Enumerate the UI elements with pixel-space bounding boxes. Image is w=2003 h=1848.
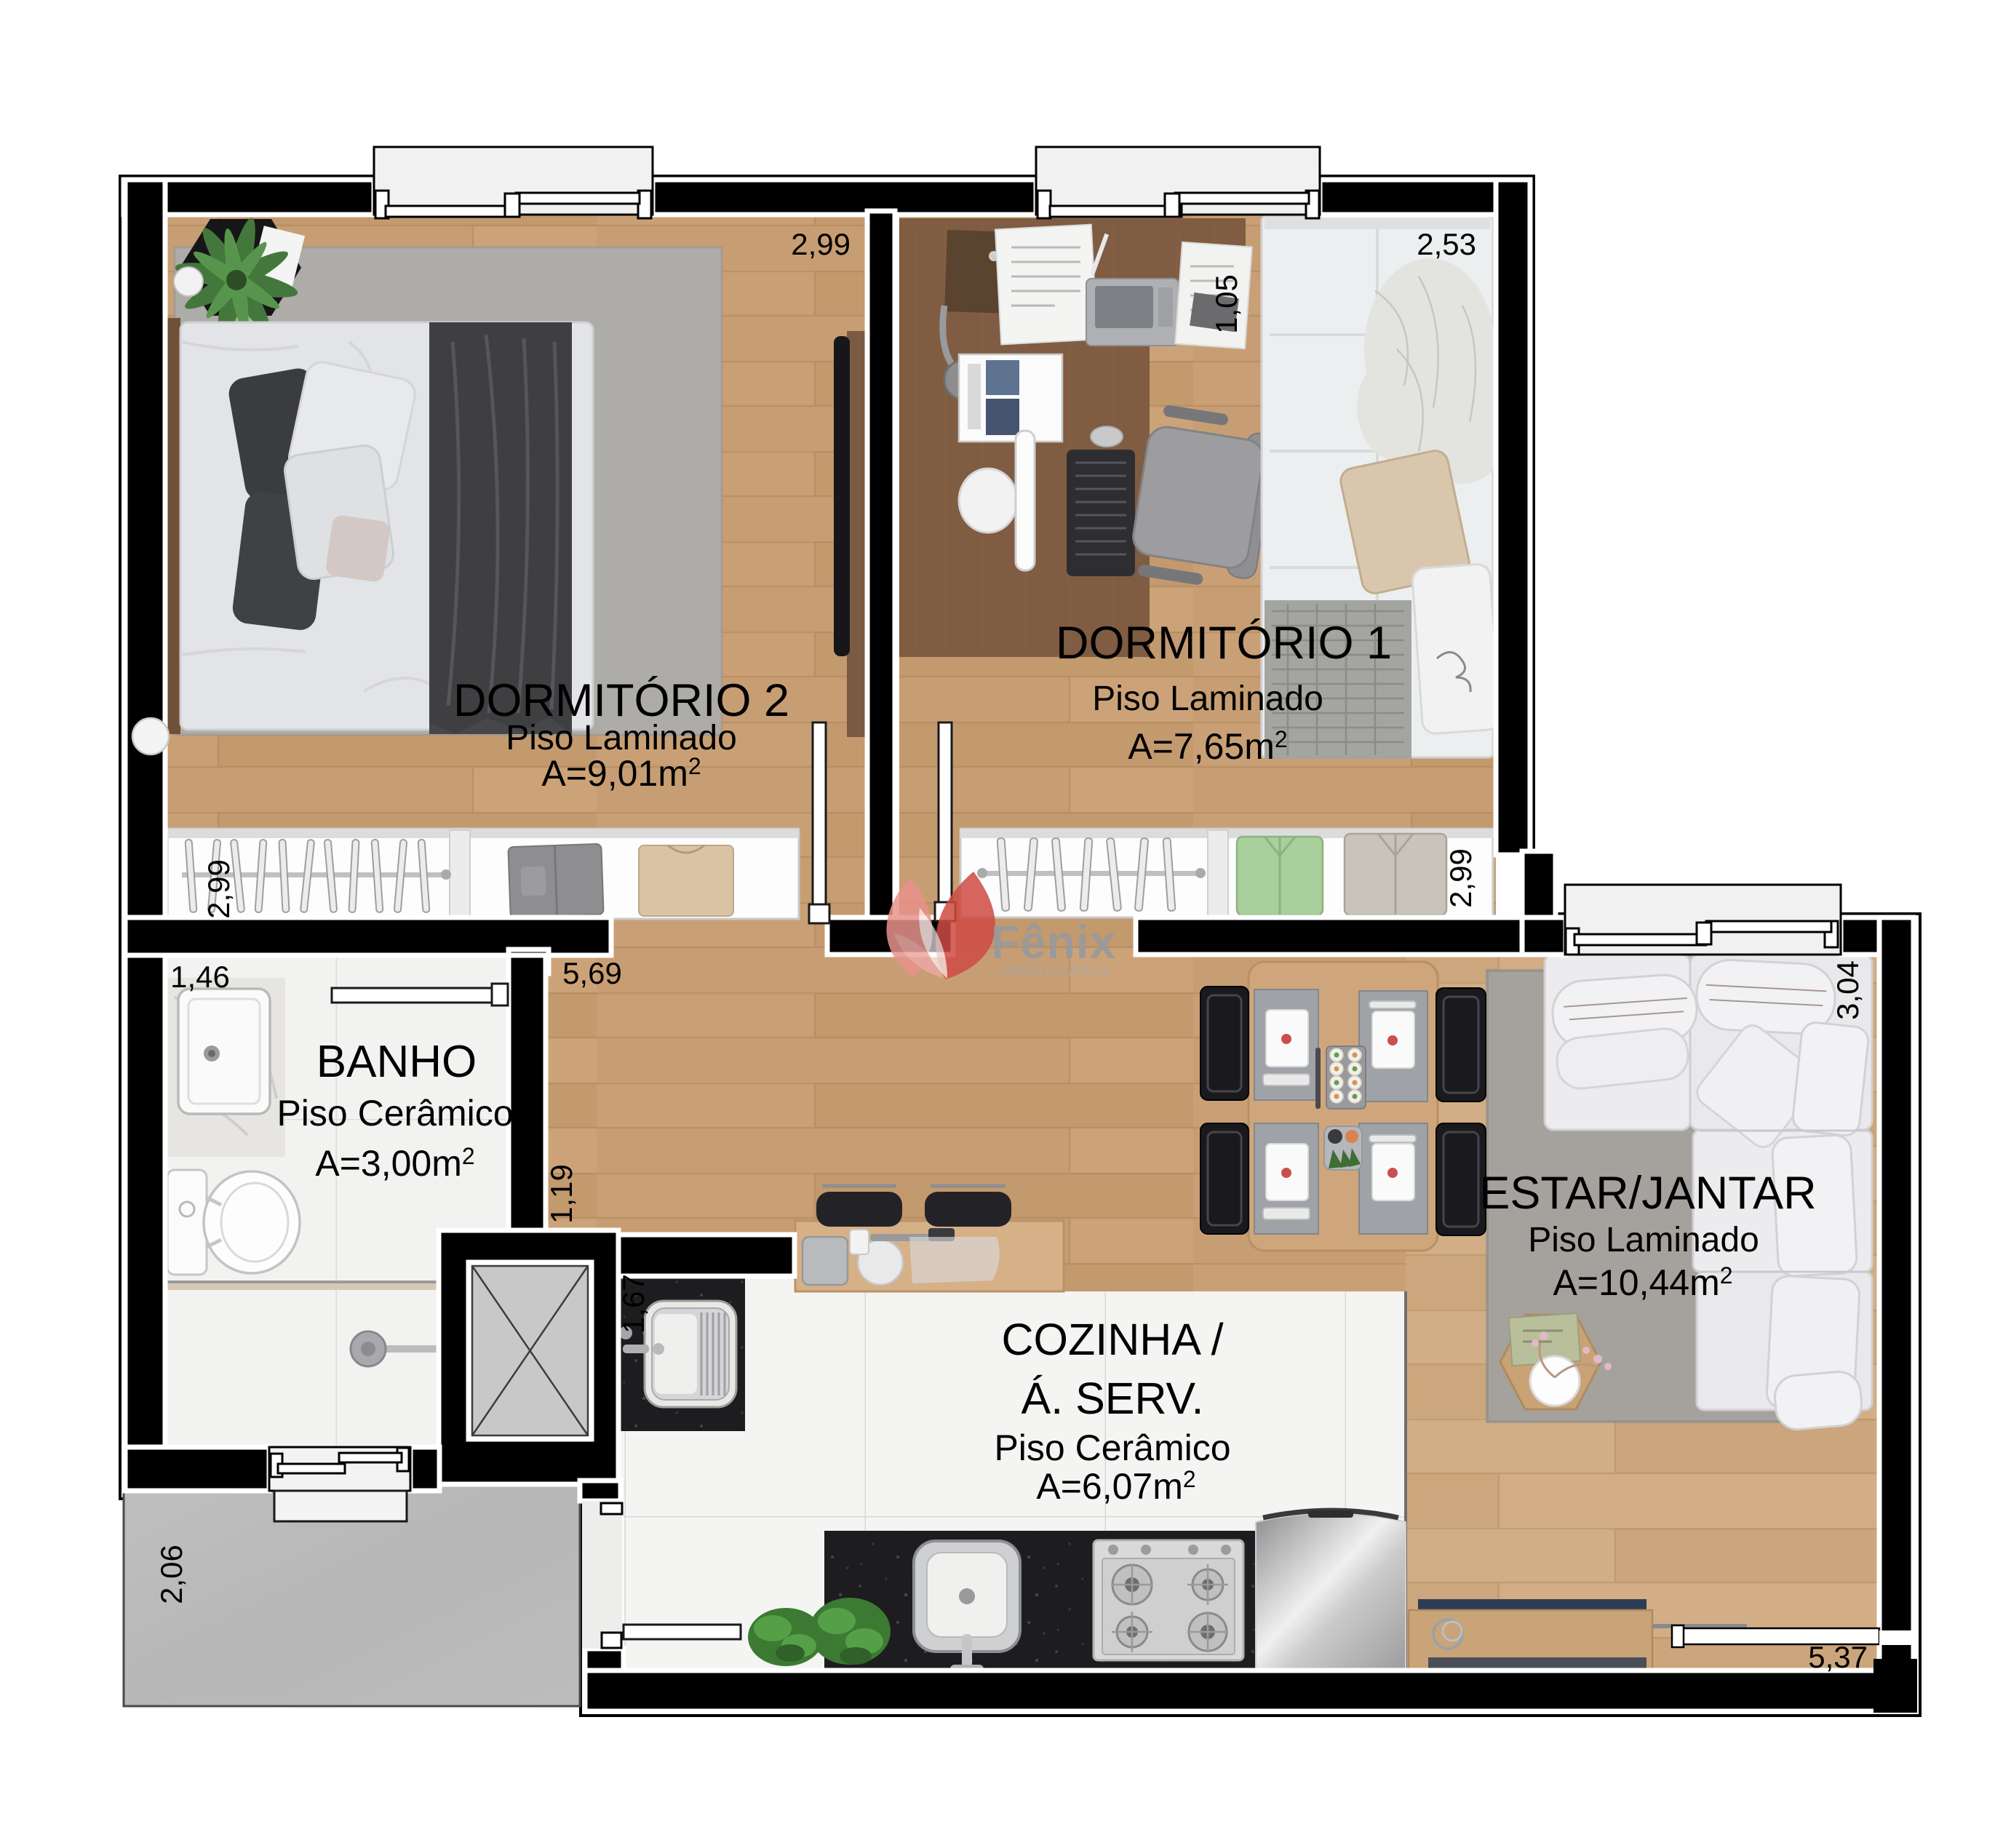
svg-text:1,67: 1,67 xyxy=(616,1274,650,1334)
svg-text:Á. SERV.: Á. SERV. xyxy=(1022,1374,1204,1423)
svg-text:Piso Cerâmico: Piso Cerâmico xyxy=(994,1427,1230,1468)
svg-text:Piso Laminado: Piso Laminado xyxy=(1528,1221,1759,1259)
svg-text:1,46: 1,46 xyxy=(170,960,230,994)
svg-text:1,05: 1,05 xyxy=(1209,274,1243,334)
svg-text:DORMITÓRIO 1: DORMITÓRIO 1 xyxy=(1056,618,1392,669)
svg-text:2,06: 2,06 xyxy=(154,1545,188,1604)
svg-text:A=9,01m2: A=9,01m2 xyxy=(541,753,701,794)
svg-text:5,69: 5,69 xyxy=(562,956,622,990)
svg-text:Fênix: Fênix xyxy=(991,916,1116,968)
svg-text:Piso Laminado: Piso Laminado xyxy=(506,719,737,757)
svg-text:COZINHA /: COZINHA / xyxy=(1001,1315,1223,1364)
svg-text:Piso Laminado: Piso Laminado xyxy=(1092,680,1323,718)
svg-text:5,37: 5,37 xyxy=(1808,1640,1868,1674)
svg-text:IMOBILIÁRIA: IMOBILIÁRIA xyxy=(1000,964,1111,979)
svg-text:ESTAR/JANTAR: ESTAR/JANTAR xyxy=(1479,1168,1816,1219)
svg-text:BANHO: BANHO xyxy=(316,1037,477,1087)
svg-text:A=10,44m2: A=10,44m2 xyxy=(1553,1262,1732,1303)
svg-text:A=3,00m2: A=3,00m2 xyxy=(315,1143,474,1184)
svg-text:2,99: 2,99 xyxy=(202,859,236,919)
svg-text:A=6,07m2: A=6,07m2 xyxy=(1036,1466,1195,1507)
svg-text:2,53: 2,53 xyxy=(1417,227,1476,261)
svg-text:Piso Cerâmico: Piso Cerâmico xyxy=(276,1093,513,1134)
svg-text:2,99: 2,99 xyxy=(791,227,851,261)
svg-text:A=7,65m2: A=7,65m2 xyxy=(1128,726,1287,767)
svg-text:2,99: 2,99 xyxy=(1443,848,1478,908)
svg-text:3,04: 3,04 xyxy=(1831,960,1865,1020)
svg-text:1,19: 1,19 xyxy=(544,1164,578,1224)
